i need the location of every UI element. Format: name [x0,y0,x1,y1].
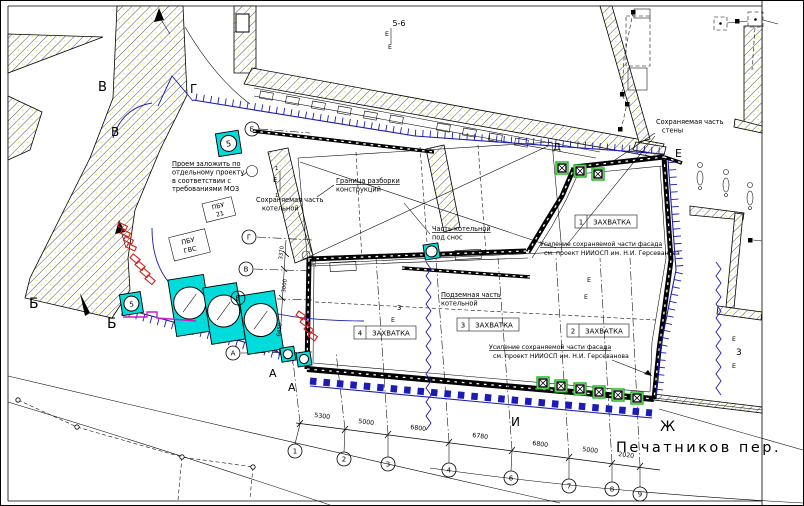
svg-text:2: 2 [571,328,575,336]
svg-text:3: 3 [461,322,465,330]
svg-text:3: 3 [397,304,401,312]
svg-text:В: В [244,266,249,274]
svg-text:1: 1 [579,219,583,227]
svg-text:Е: Е [732,363,736,370]
svg-text:1: 1 [275,166,278,172]
section-letter-g: Г [190,82,197,96]
svg-text:6: 6 [509,475,514,483]
section-letter-b1: Б [29,296,39,312]
letter-i: И [511,415,520,429]
strip-notch [236,14,249,32]
svg-text:Е: Е [273,176,277,184]
letter-d: Д [553,142,561,153]
svg-text:А: А [231,350,236,358]
svg-text:ЗАХВАТКА: ЗАХВАТКА [585,328,623,336]
svg-text:Е: Е [388,44,392,51]
svg-text:Б: Б [250,126,255,134]
section-letter-b2: Б [107,316,117,332]
equipment-pad-left: 5 [119,292,143,316]
street-name: Печатников пер. [616,440,781,456]
equipment-small-3 [423,243,440,260]
svg-text:Е: Е [385,31,389,38]
section-letter-v2: В [111,125,119,139]
svg-text:4: 4 [447,467,452,475]
section-letter-v1: В [98,80,107,95]
building-strip-east [744,26,762,128]
svg-text:7: 7 [567,483,571,491]
site-plan-screenshot: 5 5 [0,0,804,506]
letter-zh: Ж [660,419,675,435]
svg-text:ЗАХВАТКА: ЗАХВАТКА [372,330,410,338]
dim-left-4: 335 [311,256,318,267]
svg-text:Е: Е [584,294,588,301]
svg-text:1: 1 [293,448,297,456]
svg-text:2: 2 [342,456,346,464]
equipment-small-1 [280,346,296,362]
svg-text:8: 8 [610,486,614,494]
svg-text:1: 1 [275,193,278,199]
equipment-small-2 [296,351,312,367]
svg-text:Е: Е [391,317,395,324]
section-letter-a1: А [269,367,277,380]
svg-text:ЗАХВАТКА: ЗАХВАТКА [593,219,631,227]
site-plan-drawing: 5 5 [0,0,804,506]
svg-text:Е: Е [587,277,591,284]
svg-text:Б: Б [236,295,241,303]
section-letter-a2: А [288,381,296,394]
svg-text:4: 4 [358,330,363,338]
svg-text:ЗАХВАТКА: ЗАХВАТКА [475,322,513,330]
svg-text:5-6: 5-6 [392,19,405,28]
svg-text:Е: Е [732,336,736,343]
svg-text:Г: Г [247,234,251,242]
svg-text:3: 3 [386,461,390,469]
letter-e: Е [675,147,682,160]
equipment-pad-top: 5 [215,130,241,156]
svg-text:3: 3 [736,348,742,358]
svg-text:9: 9 [638,491,642,499]
